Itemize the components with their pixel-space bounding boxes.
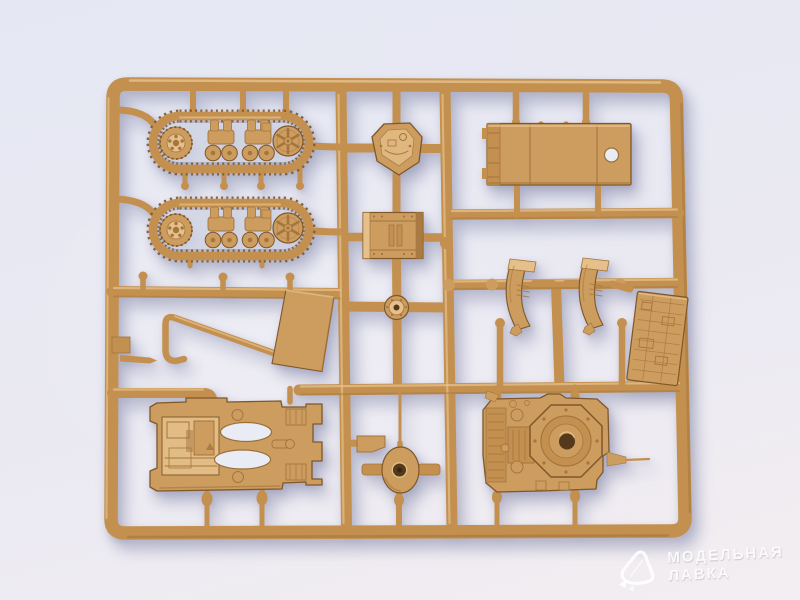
bracket-part (357, 436, 385, 452)
product-photo: МОДЕЛЬНАЯ ЛАВКА (0, 0, 800, 600)
sprue-illustration (0, 0, 800, 600)
panel-hatch-hole (605, 148, 619, 162)
fender-left-part (506, 259, 536, 336)
track-assembly-lower (153, 203, 309, 256)
roof-panel-part (482, 124, 631, 186)
sprue (107, 81, 691, 538)
antenna (626, 459, 649, 460)
modelnaya-lavka-logo-icon (614, 546, 660, 592)
watermark: МОДЕЛЬНАЯ ЛАВКА (614, 540, 785, 593)
hull-opening (221, 423, 272, 442)
side-plate-part (272, 290, 334, 372)
fender-right-part (579, 258, 609, 335)
turret-roof-part (372, 123, 422, 175)
antenna-base (607, 452, 626, 466)
road-wheel-part (385, 296, 409, 320)
lower-hull-part (150, 398, 322, 491)
engine-deck-panel-part (627, 291, 688, 386)
hull-opening (215, 450, 271, 469)
rear-hull-box-part (363, 213, 423, 259)
track-assembly-upper (153, 116, 309, 169)
turret-ring-hole (559, 434, 575, 450)
upper-hull-part (483, 391, 649, 492)
